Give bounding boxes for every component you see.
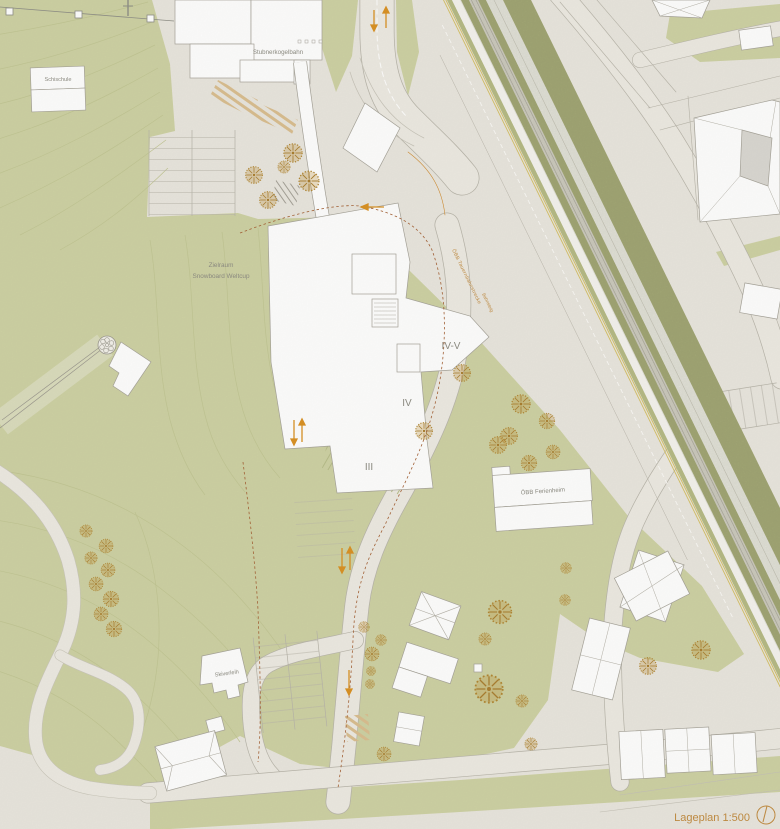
paper-grain xyxy=(0,0,780,829)
site-plan-canvas: Schischule Stubnerkogelbahn Zielraum Sno… xyxy=(0,0,780,829)
site-plan: Schischule Stubnerkogelbahn Zielraum Sno… xyxy=(0,0,780,829)
